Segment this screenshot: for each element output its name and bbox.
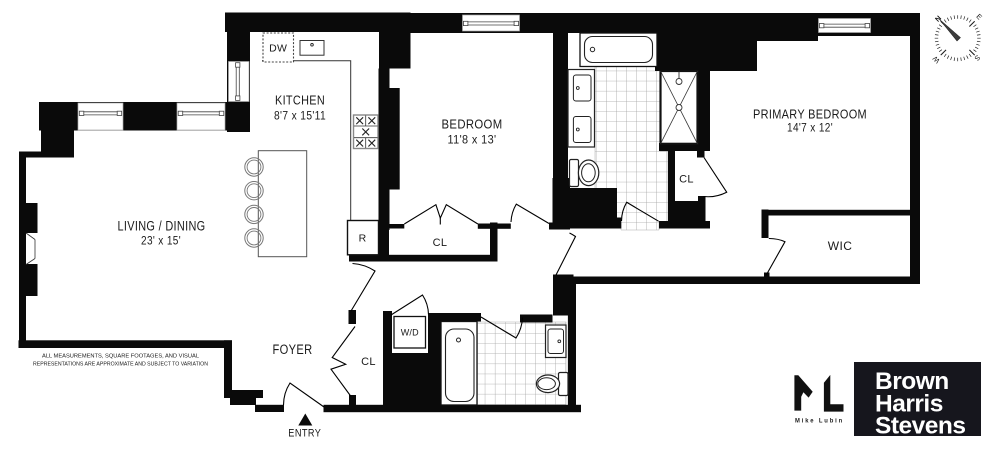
svg-text:R: R	[359, 233, 367, 245]
svg-text:CL: CL	[361, 356, 376, 368]
svg-text:CL: CL	[679, 174, 694, 186]
svg-text:W/D: W/D	[401, 328, 419, 338]
svg-text:ENTRY: ENTRY	[288, 428, 321, 440]
svg-text:KITCHEN: KITCHEN	[275, 93, 325, 108]
svg-text:ALL MEASUREMENTS, SQUARE FOOTA: ALL MEASUREMENTS, SQUARE FOOTAGES, AND V…	[42, 354, 199, 360]
svg-text:14'7 x 12': 14'7 x 12'	[787, 123, 833, 135]
svg-text:23' x 15': 23' x 15'	[141, 236, 181, 248]
svg-text:Mike Lubin: Mike Lubin	[795, 418, 844, 425]
svg-text:CL: CL	[433, 237, 448, 249]
svg-text:8'7 x 15'11: 8'7 x 15'11	[274, 111, 326, 123]
svg-text:PRIMARY BEDROOM: PRIMARY BEDROOM	[753, 107, 867, 122]
svg-text:BEDROOM: BEDROOM	[442, 117, 503, 132]
svg-text:REPRESENTATIONS ARE APPROXIMAT: REPRESENTATIONS ARE APPROXIMATE AND SUBJ…	[33, 362, 208, 368]
svg-text:FOYER: FOYER	[273, 342, 313, 357]
svg-text:LIVING / DINING: LIVING / DINING	[118, 219, 206, 234]
svg-text:DW: DW	[269, 43, 287, 55]
svg-text:Stevens: Stevens	[875, 413, 965, 440]
svg-text:11'8 x 13': 11'8 x 13'	[448, 135, 497, 147]
svg-text:WIC: WIC	[828, 239, 853, 253]
